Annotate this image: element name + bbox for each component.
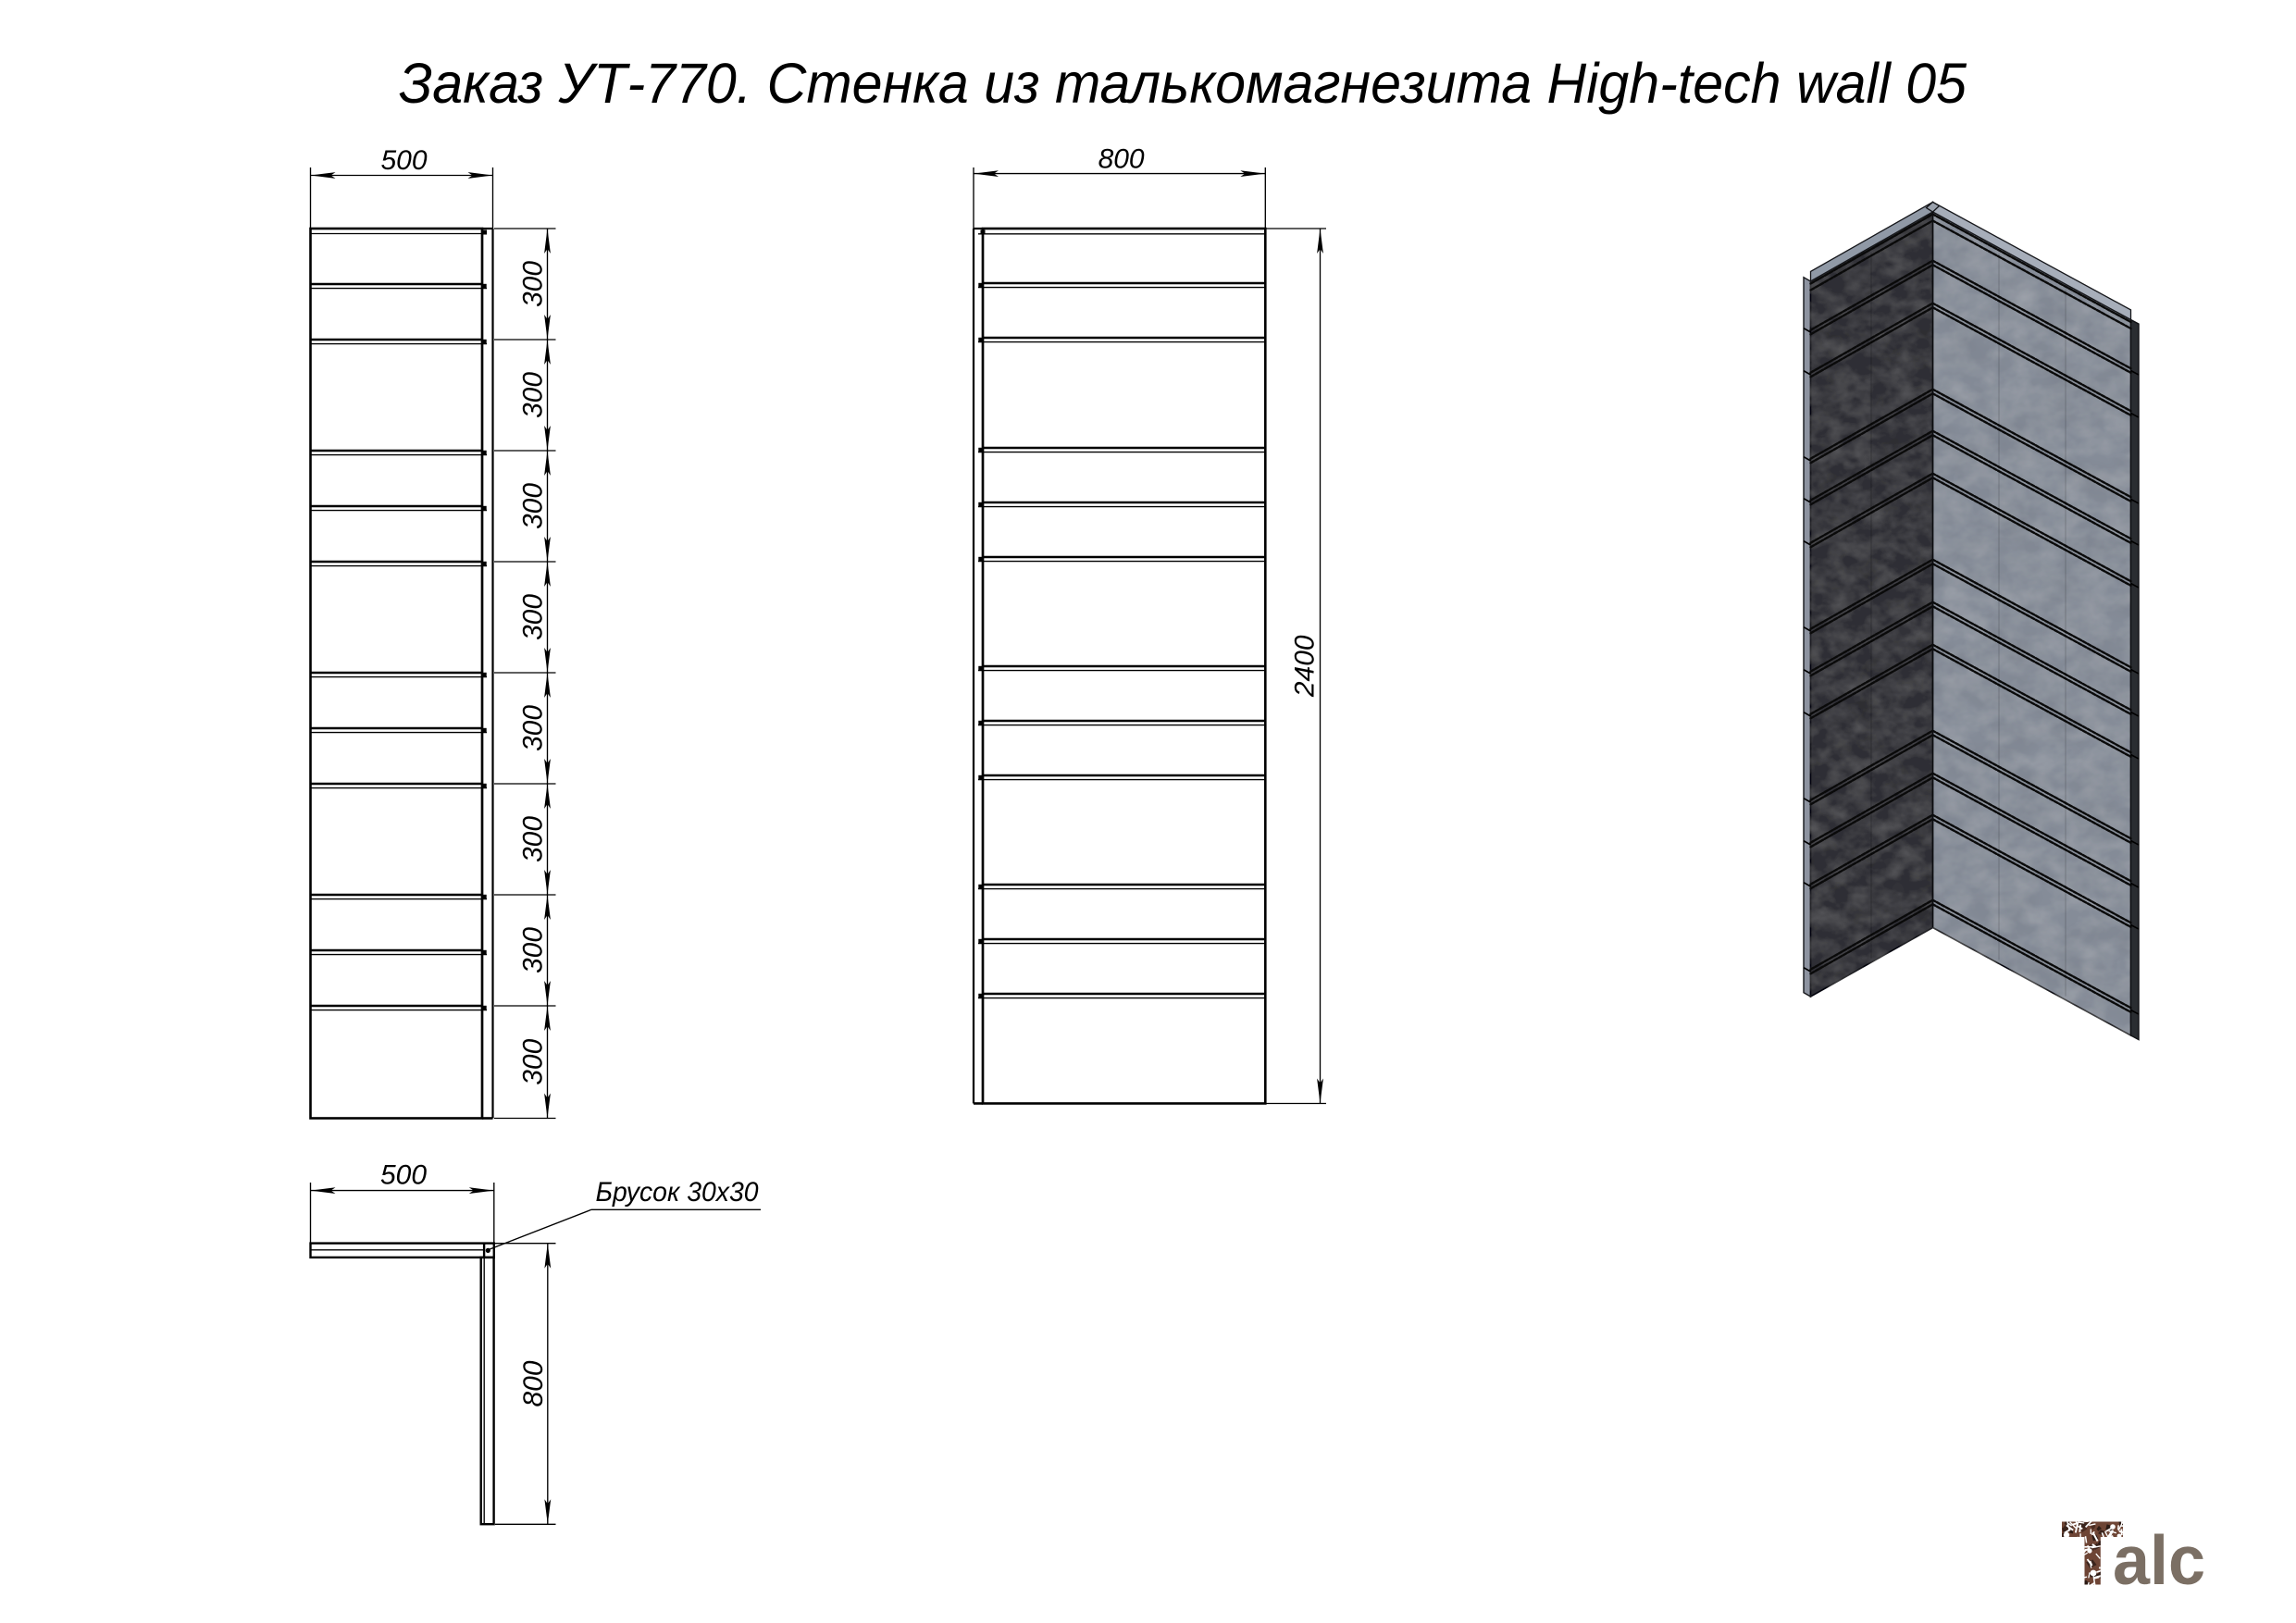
svg-text:alc: alc <box>2113 1521 2205 1599</box>
svg-text:300: 300 <box>518 594 549 640</box>
svg-text:300: 300 <box>518 1038 549 1084</box>
svg-text:Брусок 30х30: Брусок 30х30 <box>596 1177 759 1208</box>
svg-text:300: 300 <box>518 705 549 751</box>
svg-text:800: 800 <box>518 1360 549 1406</box>
svg-text:800: 800 <box>1098 144 1145 175</box>
svg-text:500: 500 <box>380 145 427 176</box>
svg-text:300: 300 <box>518 483 549 529</box>
svg-text:300: 300 <box>518 927 549 973</box>
svg-text:500: 500 <box>380 1160 427 1191</box>
svg-text:2400: 2400 <box>1290 635 1321 698</box>
svg-text:300: 300 <box>518 261 549 307</box>
svg-text:Заказ УТ-770. Стенка из талько: Заказ УТ-770. Стенка из талькомагнезита … <box>399 52 1967 115</box>
svg-text:300: 300 <box>518 372 549 418</box>
svg-text:300: 300 <box>518 816 549 862</box>
